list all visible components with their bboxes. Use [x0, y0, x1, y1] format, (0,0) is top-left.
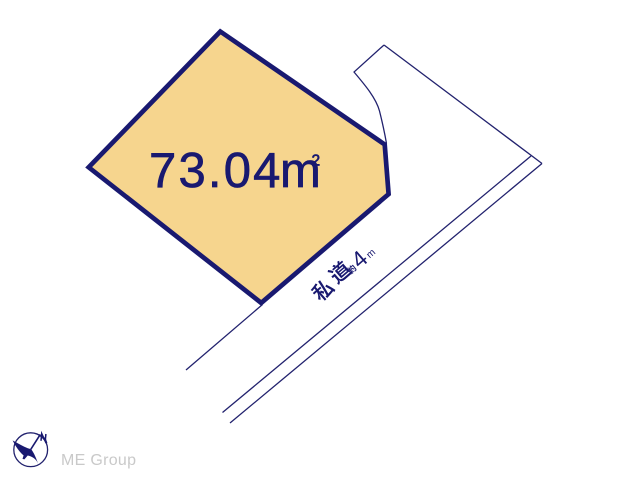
- svg-text:73.04: 73.04: [149, 144, 283, 198]
- svg-text:2: 2: [312, 153, 321, 170]
- svg-text:ME Group: ME Group: [61, 452, 136, 469]
